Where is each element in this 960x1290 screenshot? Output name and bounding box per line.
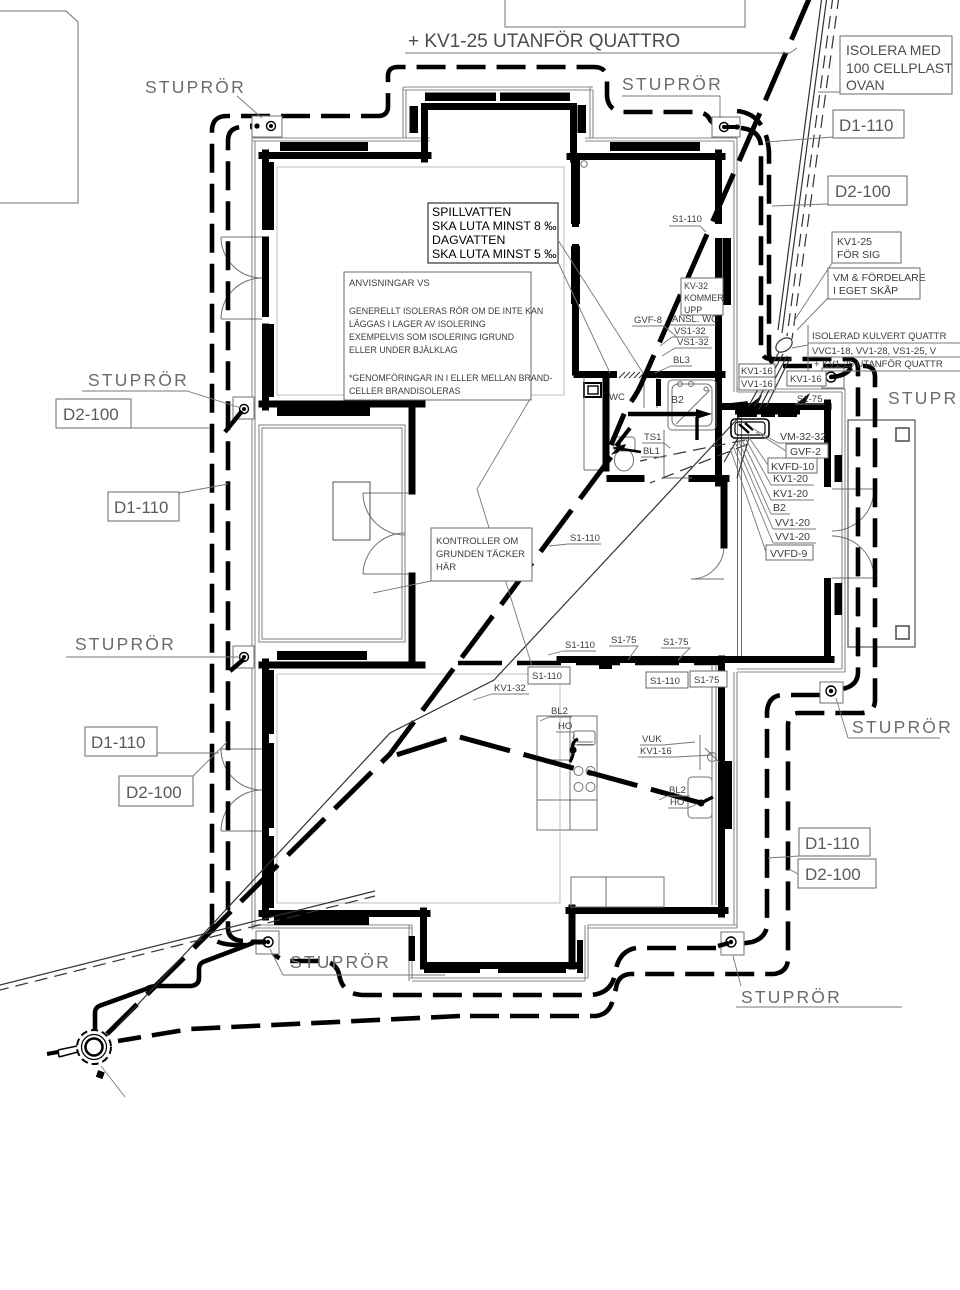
- svg-text:HO: HO: [670, 797, 684, 808]
- svg-text:STUPRÖR: STUPRÖR: [852, 717, 953, 737]
- svg-text:D1-110: D1-110: [91, 733, 146, 752]
- svg-text:B2: B2: [671, 394, 684, 406]
- svg-text:VVC1-18, VV1-28, VS1-25, V: VVC1-18, VV1-28, VS1-25, V: [812, 346, 937, 357]
- svg-text:KV1-20: KV1-20: [773, 488, 808, 500]
- svg-text:KV1-25: KV1-25: [837, 236, 872, 248]
- svg-text:S1-110: S1-110: [565, 640, 595, 651]
- svg-text:STUPRÖR: STUPRÖR: [290, 952, 391, 972]
- svg-text:KV-32: KV-32: [684, 281, 708, 291]
- svg-text:STUPRÖR: STUPRÖR: [741, 987, 842, 1007]
- svg-text:KV1-16: KV1-16: [640, 746, 672, 757]
- svg-text:DAGVATTEN: DAGVATTEN: [432, 233, 505, 247]
- svg-text:VS1-32: VS1-32: [677, 337, 709, 348]
- svg-text:+ KV1-25 UTANFÖR QUATTR: + KV1-25 UTANFÖR QUATTR: [814, 359, 943, 370]
- svg-text:VUK: VUK: [642, 734, 662, 745]
- svg-text:D2-100: D2-100: [126, 783, 182, 802]
- svg-text:D2-100: D2-100: [805, 865, 861, 884]
- svg-text:HO: HO: [558, 721, 572, 732]
- svg-text:VV1-16: VV1-16: [741, 379, 773, 390]
- svg-text:GRUNDEN TÄCKER: GRUNDEN TÄCKER: [436, 549, 525, 560]
- svg-text:100 CELLPLAST: 100 CELLPLAST: [846, 60, 953, 76]
- svg-text:VM-32-32: VM-32-32: [780, 431, 826, 443]
- svg-text:S1-110: S1-110: [650, 676, 680, 687]
- svg-text:STUPRÖR: STUPRÖR: [75, 634, 176, 654]
- svg-text:ANVISNINGAR VS: ANVISNINGAR VS: [349, 278, 430, 289]
- svg-text:ISOLERA MED: ISOLERA MED: [846, 42, 941, 58]
- svg-text:KV1-16: KV1-16: [741, 366, 773, 377]
- svg-text:GVF-2: GVF-2: [790, 446, 821, 458]
- svg-text:D1-110: D1-110: [805, 834, 860, 853]
- svg-text:S1-75: S1-75: [663, 637, 688, 648]
- svg-text:LÄGGAS I LAGER AV ISOLERING: LÄGGAS I LAGER AV ISOLERING: [349, 319, 486, 329]
- svg-text:KVFD-10: KVFD-10: [771, 461, 814, 473]
- svg-text:HÄR: HÄR: [436, 562, 456, 573]
- svg-text:STUPRÖR: STUPRÖR: [88, 370, 189, 390]
- svg-text:OVAN: OVAN: [846, 77, 885, 93]
- svg-text:FÖR SIG: FÖR SIG: [837, 249, 880, 261]
- svg-text:GVF-8: GVF-8: [634, 315, 662, 326]
- svg-text:STUPRÖR: STUPRÖR: [622, 74, 723, 94]
- svg-text:BL2: BL2: [551, 706, 568, 717]
- svg-text:SKA LUTA MINST 8 ‰: SKA LUTA MINST 8 ‰: [432, 219, 557, 233]
- svg-text:TS1: TS1: [644, 432, 661, 443]
- svg-text:GENERELLT ISOLERAS RÖR OM DE I: GENERELLT ISOLERAS RÖR OM DE INTE KAN: [349, 306, 543, 316]
- svg-text:STUPR: STUPR: [888, 388, 958, 408]
- svg-text:VS1-32: VS1-32: [674, 326, 706, 337]
- svg-text:S1-110: S1-110: [570, 533, 600, 544]
- svg-text:EXEMPELVIS SOM ISOLERING IGRUN: EXEMPELVIS SOM ISOLERING IGRUND: [349, 332, 514, 342]
- svg-text:SPILLVATTEN: SPILLVATTEN: [432, 205, 511, 219]
- svg-text:S1-75: S1-75: [611, 635, 636, 646]
- svg-text:D1-110: D1-110: [114, 498, 169, 517]
- svg-text:KV1-32: KV1-32: [494, 683, 526, 694]
- svg-text:KV1-20: KV1-20: [773, 473, 808, 485]
- svg-text:ISOLERAD KULVERT QUATTR: ISOLERAD KULVERT QUATTR: [812, 331, 947, 342]
- svg-text:S1-75: S1-75: [694, 675, 719, 686]
- svg-text:ELLER UNDER BJÄLKLAG: ELLER UNDER BJÄLKLAG: [349, 345, 458, 355]
- svg-text:STUPRÖR: STUPRÖR: [145, 77, 246, 97]
- svg-text:WC: WC: [609, 392, 625, 403]
- svg-text:BL2: BL2: [669, 785, 686, 796]
- svg-text:KOMMER: KOMMER: [684, 293, 724, 303]
- svg-text:SKA LUTA MINST 5 ‰: SKA LUTA MINST 5 ‰: [432, 247, 557, 261]
- svg-text:B2: B2: [773, 502, 786, 514]
- svg-text:BL1: BL1: [643, 446, 660, 457]
- svg-text:VM & FÖRDELARE: VM & FÖRDELARE: [833, 272, 926, 284]
- svg-text:VV1-20: VV1-20: [775, 531, 810, 543]
- svg-text:ANSL. WC: ANSL. WC: [672, 314, 718, 325]
- svg-text:I EGET SKÅP: I EGET SKÅP: [833, 284, 898, 297]
- svg-text:S1-110: S1-110: [672, 214, 702, 225]
- svg-text:S1-75: S1-75: [797, 394, 822, 405]
- svg-text:*GENOMFÖRINGAR IN I ELLER MELL: *GENOMFÖRINGAR IN I ELLER MELLAN BRAND-: [349, 373, 552, 383]
- svg-text:D2-100: D2-100: [63, 405, 119, 424]
- svg-text:KV1-16: KV1-16: [790, 374, 822, 385]
- svg-text:D2-100: D2-100: [835, 182, 891, 201]
- svg-text:VVFD-9: VVFD-9: [770, 548, 808, 560]
- svg-text:S1-110: S1-110: [532, 671, 562, 682]
- svg-text:D1-110: D1-110: [839, 116, 894, 135]
- svg-text:VV1-20: VV1-20: [775, 517, 810, 529]
- svg-text:BL3: BL3: [673, 355, 690, 366]
- svg-text:CELLER BRANDISOLERAS: CELLER BRANDISOLERAS: [349, 386, 461, 396]
- svg-text:KONTROLLER OM: KONTROLLER OM: [436, 536, 518, 547]
- svg-text:+ KV1-25 UTANFÖR QUATTRO: + KV1-25 UTANFÖR QUATTRO: [408, 31, 680, 52]
